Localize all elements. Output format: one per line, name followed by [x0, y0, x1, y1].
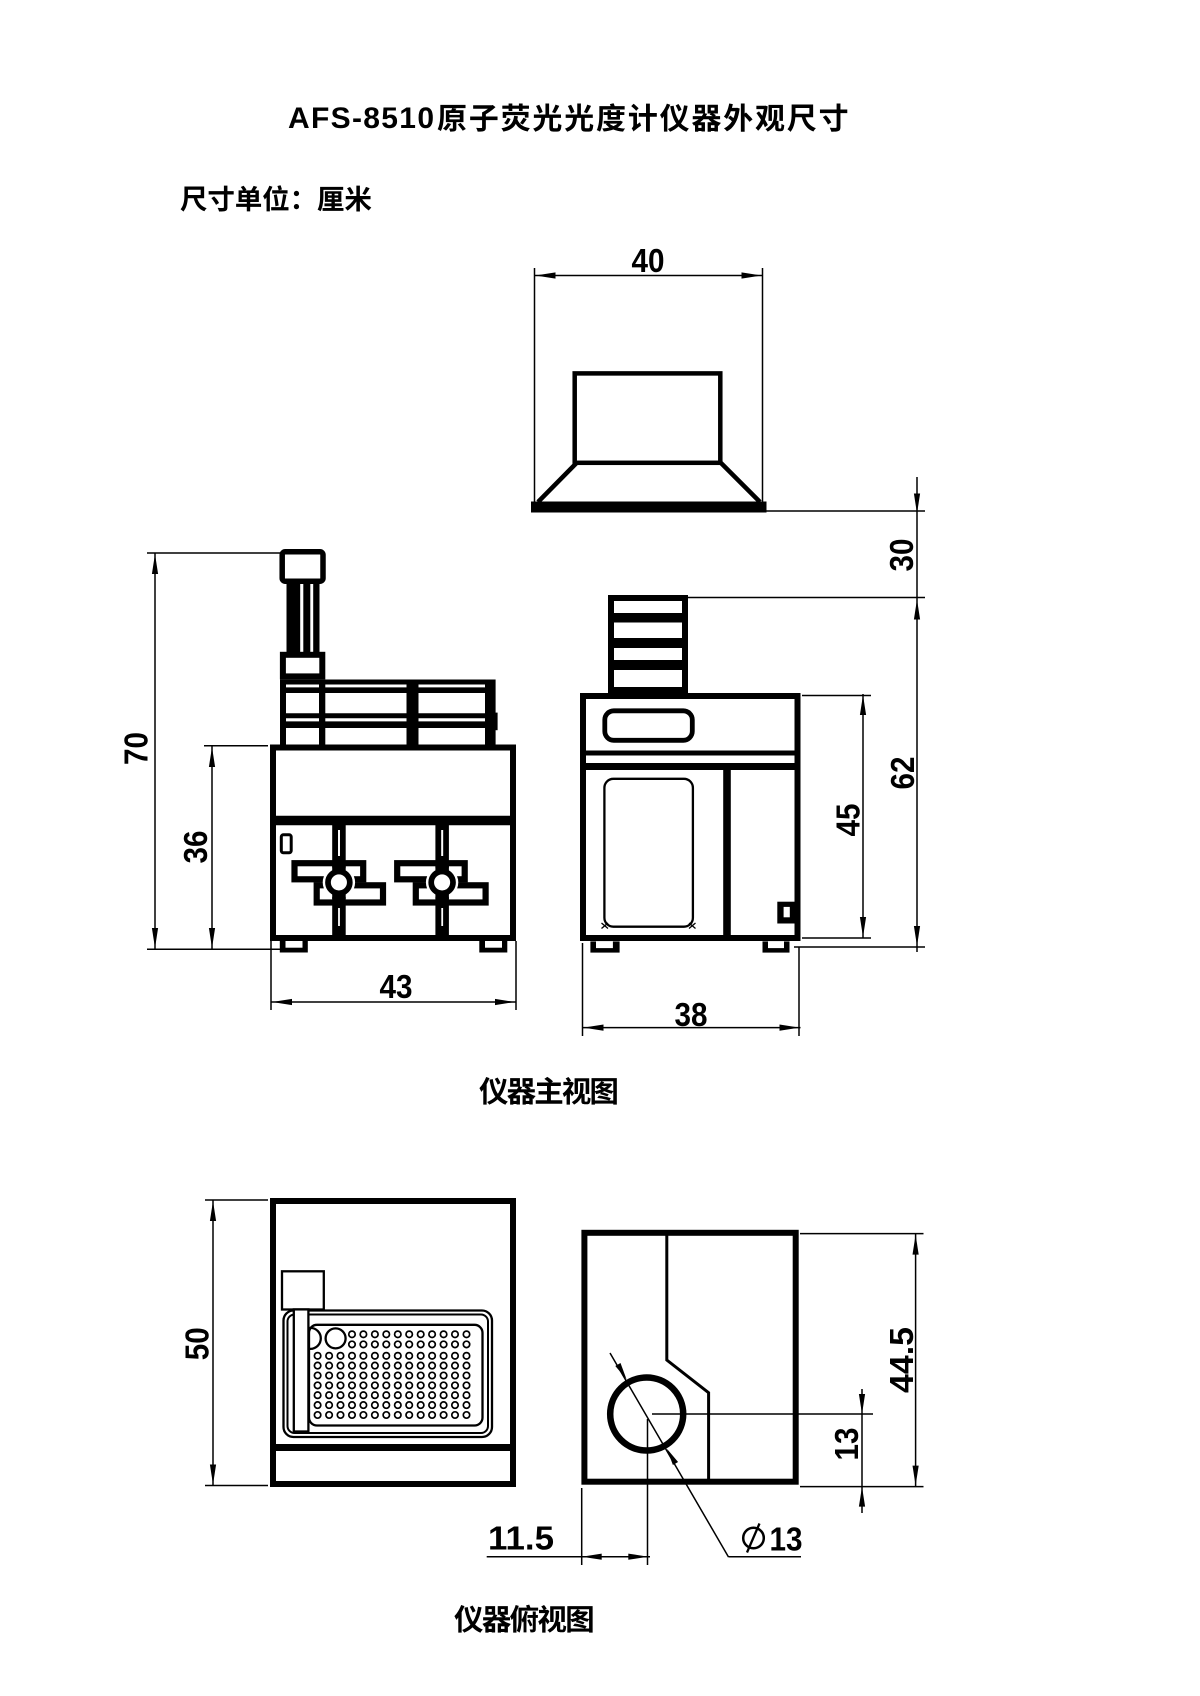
svg-text:30: 30: [883, 539, 920, 572]
svg-text:13: 13: [770, 1521, 803, 1558]
svg-text:11.5: 11.5: [488, 1520, 554, 1557]
svg-text:45: 45: [830, 804, 867, 837]
svg-text:13: 13: [828, 1428, 865, 1461]
svg-text:40: 40: [632, 242, 665, 279]
svg-text:50: 50: [179, 1327, 216, 1360]
svg-text:62: 62: [884, 757, 921, 790]
svg-text:43: 43: [380, 968, 413, 1005]
svg-text:44.5: 44.5: [883, 1327, 920, 1393]
svg-text:AFS-8510: AFS-8510: [288, 102, 434, 135]
svg-text:36: 36: [177, 831, 214, 864]
svg-text:70: 70: [118, 732, 155, 765]
